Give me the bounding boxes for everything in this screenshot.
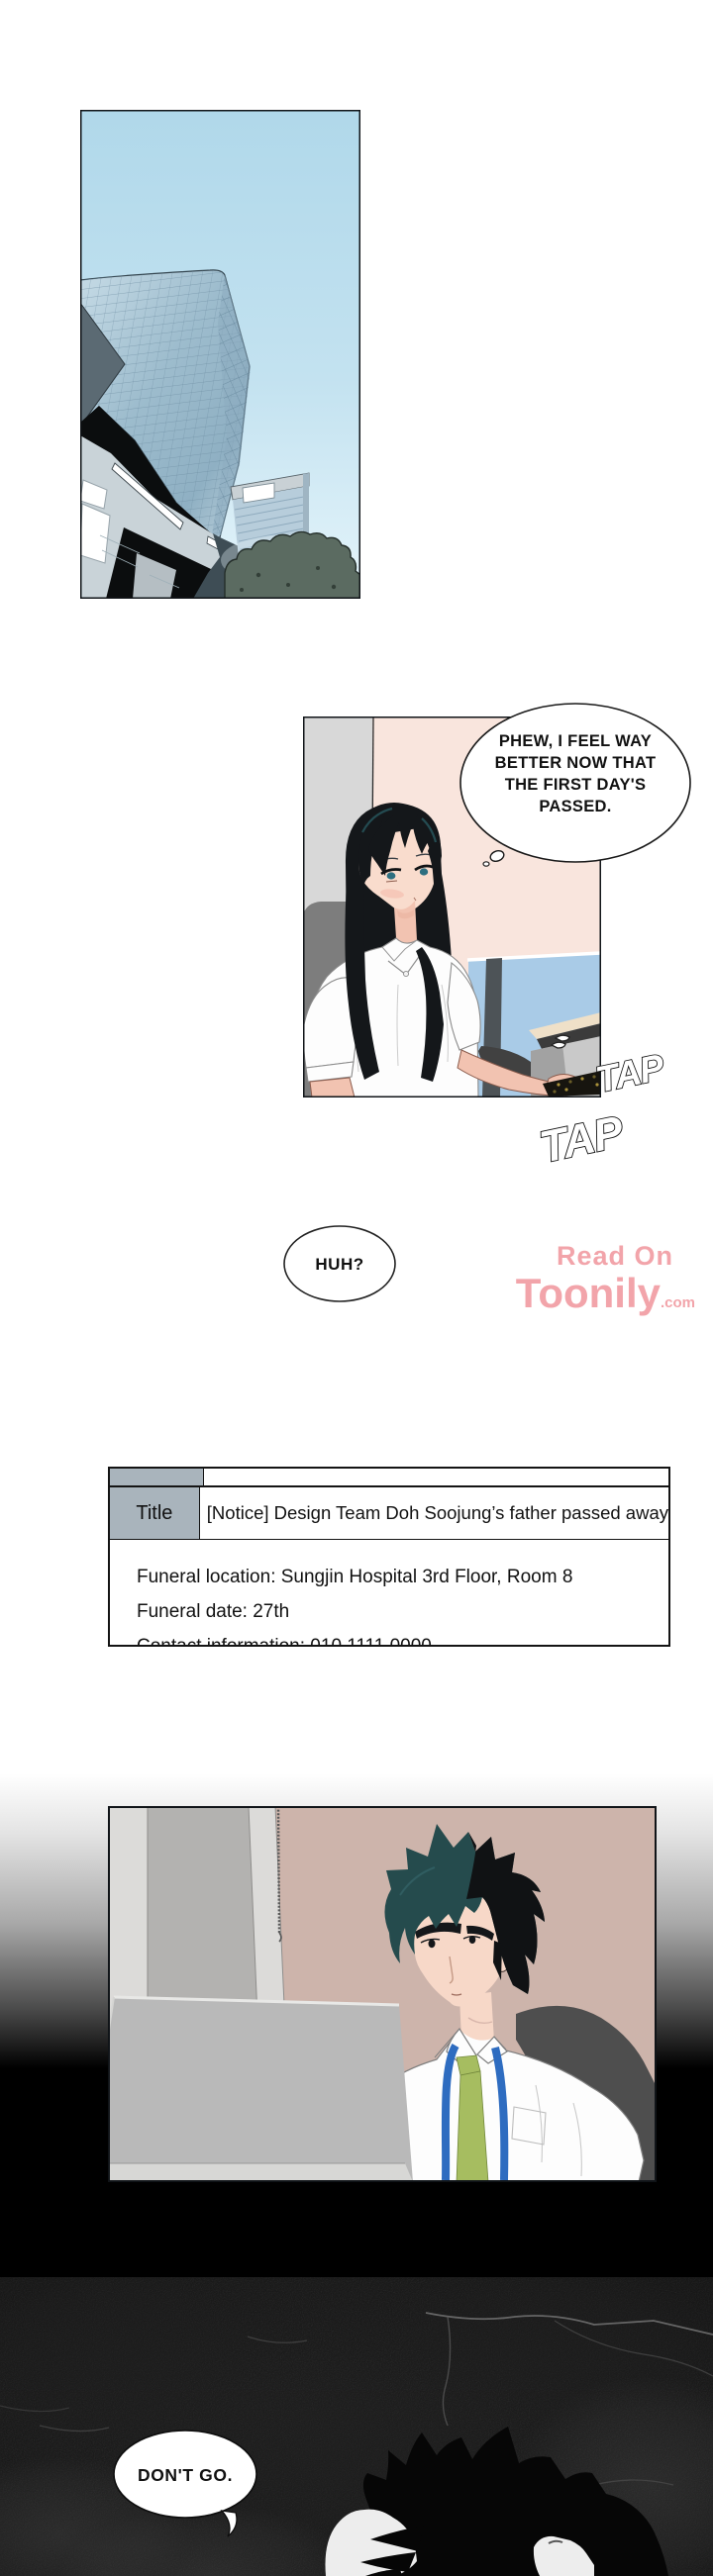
svg-text:THE FIRST DAY'S: THE FIRST DAY'S	[505, 776, 647, 794]
svg-text:PHEW, I FEEL WAY: PHEW, I FEEL WAY	[499, 732, 652, 750]
svg-text:TAP: TAP	[535, 1105, 628, 1173]
svg-text:HUH?: HUH?	[315, 1255, 363, 1274]
svg-text:BETTER NOW THAT: BETTER NOW THAT	[495, 754, 657, 772]
svg-text:DON'T GO.: DON'T GO.	[138, 2465, 233, 2485]
svg-text:PASSED.: PASSED.	[539, 798, 611, 815]
svg-text:TAP: TAP	[592, 1046, 668, 1100]
